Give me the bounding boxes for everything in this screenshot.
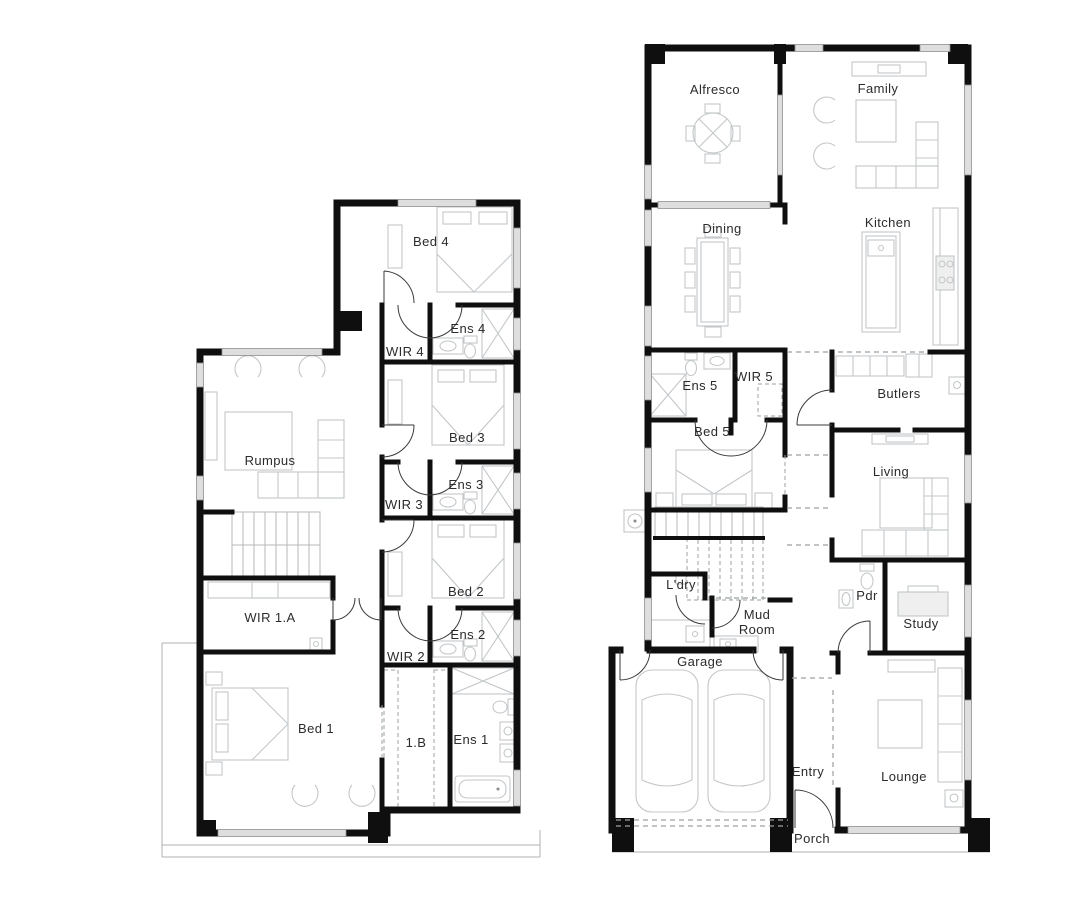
floor-plan-canvas: Bed 4 Ens 4 WIR 4 Bed 3 Ens 3 WIR 3 Bed … <box>0 0 1082 900</box>
room-label-kitchen: Kitchen <box>865 215 911 230</box>
room-label-bed2: Bed 2 <box>448 584 484 599</box>
room-label-porch: Porch <box>794 831 830 846</box>
room-label-garage: Garage <box>677 654 723 669</box>
room-label-ens4: Ens 4 <box>450 321 485 336</box>
room-label-laundry: L'dry <box>666 577 696 592</box>
room-label-dining: Dining <box>702 221 741 236</box>
room-label-wir1a: WIR 1.A <box>244 610 295 625</box>
room-label-bed3: Bed 3 <box>449 430 485 445</box>
room-label-living: Living <box>873 464 909 479</box>
ground-floor-plan: Alfresco Family Dining Kitchen Ens 5 WIR… <box>612 44 990 852</box>
room-label-family: Family <box>858 81 899 96</box>
room-label-wir3: WIR 3 <box>385 497 423 512</box>
room-label-study: Study <box>903 616 938 631</box>
room-label-ens1: Ens 1 <box>453 732 488 747</box>
room-label-butlers: Butlers <box>877 386 920 401</box>
room-label-pdr: Pdr <box>856 588 878 603</box>
room-label-mudroom-line1: Mud <box>744 607 771 622</box>
room-label-rumpus: Rumpus <box>245 453 296 468</box>
room-label-entry: Entry <box>792 764 824 779</box>
room-label-ens2: Ens 2 <box>450 627 485 642</box>
cooktop-icon <box>936 256 954 290</box>
room-label-wir2: WIR 2 <box>387 649 425 664</box>
room-label-bed4: Bed 4 <box>413 234 449 249</box>
room-label-wir4: WIR 4 <box>386 344 424 359</box>
room-label-lounge: Lounge <box>881 769 927 784</box>
room-label-ens5: Ens 5 <box>682 378 717 393</box>
room-label-wir5: WIR 5 <box>735 369 773 384</box>
room-label-ens3: Ens 3 <box>448 477 483 492</box>
upper-floor-plan: Bed 4 Ens 4 WIR 4 Bed 3 Ens 3 WIR 3 Bed … <box>162 200 540 858</box>
room-label-alfresco: Alfresco <box>690 82 740 97</box>
external-unit-icon <box>624 510 646 532</box>
room-label-bed5: Bed 5 <box>694 424 730 439</box>
room-label-bed1: Bed 1 <box>298 721 334 736</box>
room-label-mudroom-line2: Room <box>739 622 775 637</box>
room-label-wir1b: 1.B <box>406 735 427 750</box>
